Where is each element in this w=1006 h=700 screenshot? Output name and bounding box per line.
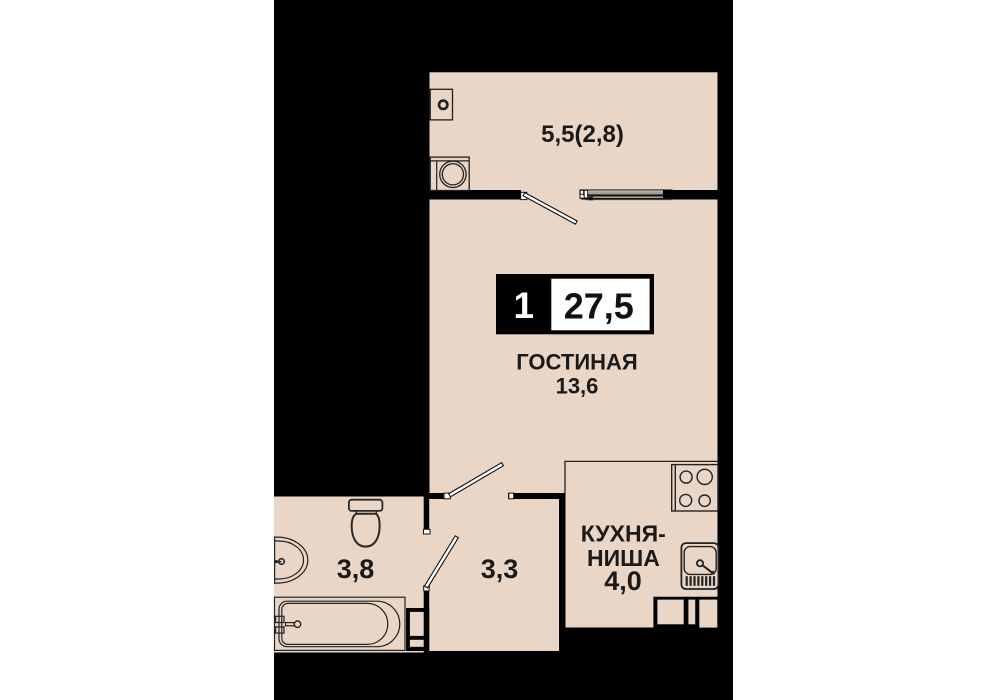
svg-text:3,8: 3,8	[337, 554, 375, 584]
svg-text:ГОСТИНАЯ: ГОСТИНАЯ	[516, 350, 637, 375]
svg-text:КУХНЯ-: КУХНЯ-	[581, 521, 666, 547]
svg-text:5,5(2,8): 5,5(2,8)	[541, 121, 624, 148]
svg-text:4,0: 4,0	[604, 566, 642, 596]
svg-text:27,5: 27,5	[564, 285, 634, 326]
svg-text:1: 1	[514, 285, 535, 326]
svg-text:3,3: 3,3	[481, 554, 519, 584]
svg-text:13,6: 13,6	[556, 374, 599, 399]
